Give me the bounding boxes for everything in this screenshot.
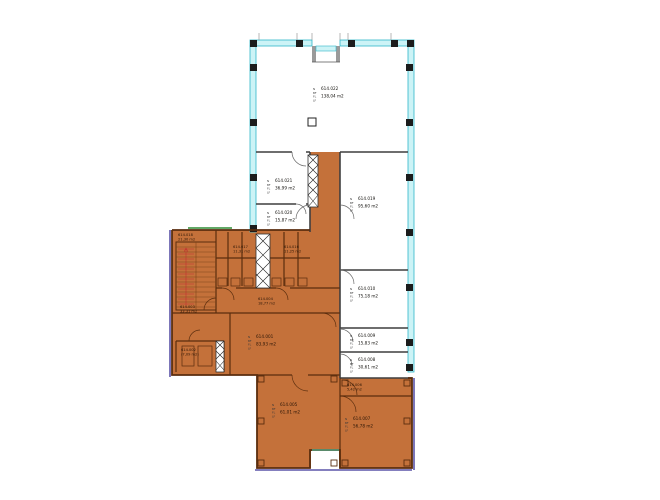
svg-text:LF: LF [313,98,317,102]
dimension-ticks [259,33,391,40]
room-stamp-614.006: 614.0065,42 m2 [347,383,363,392]
svg-text:614.004: 614.004 [258,297,274,301]
svg-text:LF: LF [248,346,252,350]
svg-text:18,77 m2: 18,77 m2 [258,302,275,306]
svg-text:614.010: 614.010 [358,286,376,291]
svg-text:95,60 m2: 95,60 m2 [358,204,378,209]
svg-text:614.002: 614.002 [181,348,196,352]
svg-text:21,30 m2: 21,30 m2 [178,238,195,242]
room-stamp-614.017: 614.01711,31 m2 [233,245,250,254]
svg-text:LF: LF [272,414,276,418]
svg-text:LF: LF [350,298,354,302]
room-area-614.016[interactable] [270,230,340,288]
svg-text:36,99 m2: 36,99 m2 [275,186,295,191]
svg-text:LF: LF [345,428,349,432]
room-stamp-614.018: 614.01821,30 m2 [178,233,195,242]
svg-text:15,87 m2: 15,87 m2 [275,218,295,223]
svg-text:61,01 m2: 61,01 m2 [280,410,300,415]
svg-text:83,93 m2: 83,93 m2 [256,342,276,347]
svg-text:614.001: 614.001 [256,334,274,339]
svg-text:11,31 m2: 11,31 m2 [233,250,250,254]
room-stamp-614.003: 614.00333,31 m2 [180,305,197,314]
svg-text:614.021: 614.021 [275,178,293,183]
svg-text:11,25 m2: 11,25 m2 [284,250,301,254]
svg-text:614.020: 614.020 [275,210,293,215]
svg-text:614.006: 614.006 [347,383,363,387]
room-area-614.001[interactable] [230,313,340,375]
svg-text:33,31 m2: 33,31 m2 [180,310,197,314]
floor-plan-page: NBFFLLF614.022138,04 m2NBFFLLF614.02136,… [0,0,660,500]
svg-text:56,78 m2: 56,78 m2 [353,424,373,429]
svg-text:614.003: 614.003 [180,305,195,309]
room-area-614.017[interactable] [216,230,270,288]
svg-text:LF: LF [267,222,271,226]
svg-text:LF: LF [350,369,354,373]
room-area-614.018[interactable] [172,230,216,313]
floor-plan-drawing: NBFFLLF614.022138,04 m2NBFFLLF614.02136,… [0,0,660,500]
room-stamp-614.016: 614.01611,25 m2 [284,245,301,254]
svg-text:5,42 m2: 5,42 m2 [347,388,362,392]
svg-text:75,18 m2: 75,18 m2 [358,294,378,299]
room-stamp-614.004: 614.00418,77 m2 [258,297,275,306]
room-area-614.005[interactable] [257,375,340,468]
room-area-614.003[interactable] [172,313,230,341]
room-area-614.022[interactable] [256,46,408,152]
room-area-614.004[interactable] [216,288,340,313]
svg-text:614.009: 614.009 [358,333,376,338]
svg-text:LF: LF [350,345,354,349]
svg-text:614.005: 614.005 [280,402,298,407]
svg-text:614.007: 614.007 [353,416,371,421]
svg-text:614.016: 614.016 [284,245,300,249]
svg-text:614.019: 614.019 [358,196,376,201]
svg-text:LF: LF [350,208,354,212]
svg-text:614.022: 614.022 [321,86,339,91]
svg-text:614.018: 614.018 [178,233,194,237]
svg-text:30,61 m2: 30,61 m2 [358,365,378,370]
svg-text:138,04 m2: 138,04 m2 [321,94,344,99]
svg-text:614.017: 614.017 [233,245,248,249]
svg-text:(7,09 m2): (7,09 m2) [181,353,199,357]
svg-text:15,83 m2: 15,83 m2 [358,341,378,346]
svg-text:LF: LF [267,190,271,194]
room-area-614.007[interactable] [340,396,412,468]
svg-text:614.008: 614.008 [358,357,376,362]
